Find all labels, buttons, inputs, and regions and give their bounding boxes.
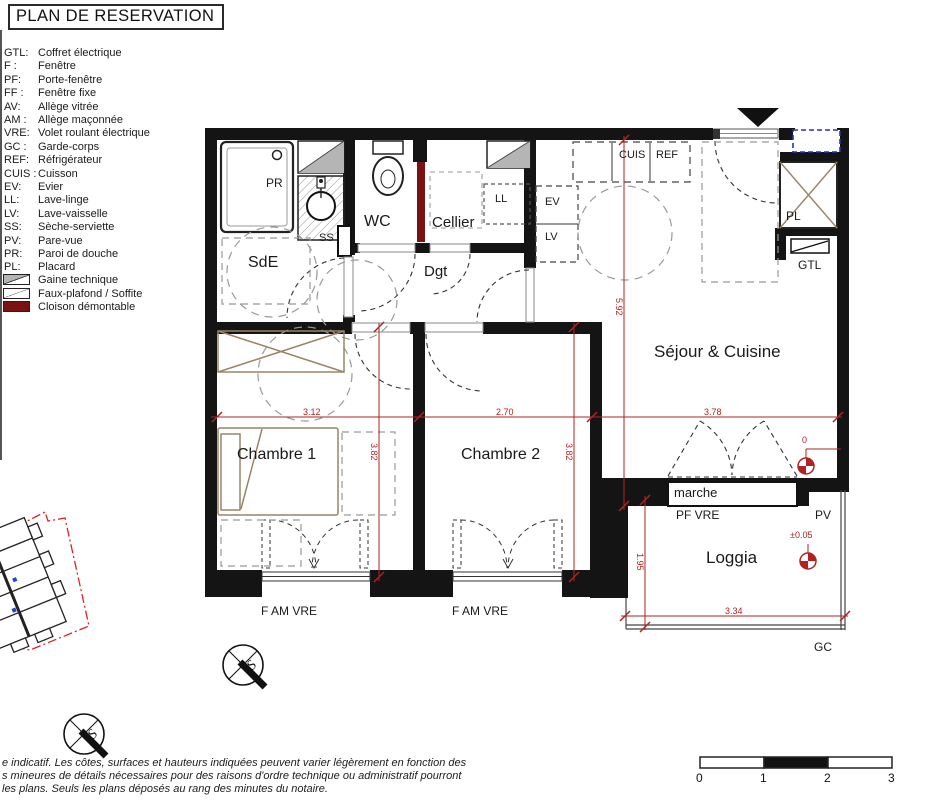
cloison-demontable bbox=[417, 162, 425, 242]
legend-label: Sèche-serviette bbox=[38, 221, 114, 233]
disclaimer-line-3: les plans. Seuls les plans déposés au ra… bbox=[2, 783, 328, 795]
legend-label: Allège vitrée bbox=[38, 101, 99, 113]
legend-abbr: SS: bbox=[4, 221, 37, 233]
cloison-swatch-icon bbox=[3, 301, 30, 312]
legend-label: Cloison démontable bbox=[38, 301, 135, 313]
legend-abbr: PL: bbox=[4, 261, 37, 273]
legend-label: Garde-corps bbox=[38, 141, 99, 153]
legend-abbr: GC : bbox=[4, 141, 37, 153]
legend-label: Coffret électrique bbox=[38, 47, 122, 59]
legend-label: Evier bbox=[38, 181, 63, 193]
dim-chambre1-width: 3.12 bbox=[303, 408, 321, 417]
legend-abbr: PV: bbox=[4, 235, 37, 247]
page-title: PLAN DE RESERVATION bbox=[8, 4, 224, 30]
scale-label-0: 0 bbox=[696, 771, 703, 785]
gaine-swatch-icon bbox=[3, 274, 30, 285]
dim-chambre1-depth: 3.82 bbox=[369, 443, 378, 461]
legend-label: Lave-linge bbox=[38, 194, 89, 206]
legend-abbr: VRE: bbox=[4, 127, 37, 139]
legend-abbr: F : bbox=[4, 60, 37, 72]
floor-plan-drawing bbox=[0, 0, 930, 800]
dim-sejour-width: 3.78 bbox=[704, 408, 722, 417]
sheet-border bbox=[0, 30, 2, 460]
legend-abbr: EV: bbox=[4, 181, 37, 193]
room-label-chambre2: Chambre 2 bbox=[461, 447, 540, 464]
opening-label-pf-vre: PF VRE bbox=[676, 509, 719, 522]
site-plan-inset bbox=[0, 508, 89, 659]
scale-bar bbox=[700, 757, 892, 768]
toilet bbox=[373, 141, 403, 195]
opening-label-marche: marche bbox=[674, 486, 717, 500]
level-marker-sejour bbox=[798, 449, 841, 474]
fixture-label-ss: SS bbox=[319, 233, 334, 245]
window-chambre1 bbox=[262, 520, 370, 581]
entrance-arrow-icon bbox=[737, 108, 779, 127]
gtl-box bbox=[786, 236, 836, 257]
legend-abbr: AM : bbox=[4, 114, 37, 126]
dim-sejour-depth: 5.92 bbox=[614, 298, 623, 316]
legend-label: Fenêtre fixe bbox=[38, 87, 96, 99]
entrance-door bbox=[713, 128, 779, 203]
level-marker-loggia bbox=[800, 544, 816, 569]
soffite-swatch-icon bbox=[3, 288, 30, 299]
fixture-label-lv: LV bbox=[545, 232, 558, 244]
blue-duct-box bbox=[793, 130, 840, 152]
scale-label-1: 1 bbox=[760, 771, 767, 785]
opening-label-f-am-vre-1: F AM VRE bbox=[261, 605, 317, 618]
legend-abbr: PR: bbox=[4, 248, 37, 260]
legend-abbr: CUIS : bbox=[4, 168, 37, 180]
level-label-loggia: ±0.05 bbox=[790, 531, 812, 540]
disclaimer-line-2: s mineures de détails nécessaires pour d… bbox=[2, 770, 461, 782]
dim-chambre2-depth: 3.82 bbox=[564, 443, 573, 461]
opening-label-f-am-vre-2: F AM VRE bbox=[452, 605, 508, 618]
opening-label-gc: GC bbox=[814, 641, 832, 654]
room-label-dgt: Dgt bbox=[424, 264, 447, 280]
room-label-cellier: Cellier bbox=[432, 215, 475, 231]
room-label-wc: WC bbox=[364, 214, 391, 231]
opening-label-pv: PV bbox=[815, 509, 831, 522]
legend-abbr: PF: bbox=[4, 74, 37, 86]
fixture-label-pr: PR bbox=[266, 177, 283, 190]
seche-serviette bbox=[338, 226, 351, 256]
legend-abbr: AV: bbox=[4, 101, 37, 113]
gaine-technique-cellier bbox=[487, 141, 530, 168]
legend-label: Faux-plafond / Soffite bbox=[38, 288, 142, 300]
reservation-plan-sheet: PLAN DE RESERVATION GTL: Coffret électri… bbox=[0, 0, 930, 800]
room-label-sde: SdE bbox=[248, 255, 278, 272]
room-label-chambre1: Chambre 1 bbox=[237, 447, 316, 464]
legend-abbr: LL: bbox=[4, 194, 37, 206]
legend-label: Pare-vue bbox=[38, 235, 83, 247]
room-label-loggia: Loggia bbox=[706, 549, 757, 567]
dim-loggia-depth: 1.95 bbox=[635, 553, 644, 571]
fixture-label-ll: LL bbox=[495, 194, 507, 206]
fixture-label-pl: PL bbox=[786, 210, 801, 223]
fixture-label-gtl: GTL bbox=[798, 259, 821, 272]
legend-label: Allège maçonnée bbox=[38, 114, 123, 126]
legend-label: Réfrigérateur bbox=[38, 154, 102, 166]
legend-label: Placard bbox=[38, 261, 75, 273]
room-label-sejour: Séjour & Cuisine bbox=[654, 343, 781, 361]
legend-label: Gaine technique bbox=[38, 274, 118, 286]
legend-label: Lave-vaisselle bbox=[38, 208, 108, 220]
disclaimer-line-1: e indicatif. Les côtes, surfaces et haut… bbox=[2, 757, 466, 769]
chambre1-furniture bbox=[218, 331, 344, 515]
legend-label: Cuisson bbox=[38, 168, 78, 180]
legend-label: Fenêtre bbox=[38, 60, 76, 72]
scale-label-3: 3 bbox=[888, 771, 895, 785]
legend-abbr: GTL: bbox=[4, 47, 37, 59]
legend-label: Volet roulant électrique bbox=[38, 127, 150, 139]
fixture-label-ev: EV bbox=[545, 197, 560, 209]
legend-label: Porte-fenêtre bbox=[38, 74, 102, 86]
interior-doors bbox=[344, 244, 534, 332]
window-chambre2 bbox=[453, 520, 562, 581]
level-label-sejour: 0 bbox=[802, 436, 807, 445]
legend-abbr: FF : bbox=[4, 87, 37, 99]
legend-label: Paroi de douche bbox=[38, 248, 118, 260]
legend-abbr: REF: bbox=[4, 154, 37, 166]
loggia-french-door bbox=[668, 421, 797, 477]
dim-chambre2-width: 2.70 bbox=[496, 408, 514, 417]
gaine-technique-sde bbox=[298, 141, 344, 173]
fixture-label-ref: REF bbox=[656, 150, 678, 162]
scale-label-2: 2 bbox=[824, 771, 831, 785]
dim-loggia-width: 3.34 bbox=[725, 607, 743, 616]
legend-abbr: LV: bbox=[4, 208, 37, 220]
fixture-label-cuis: CUIS bbox=[619, 150, 645, 162]
